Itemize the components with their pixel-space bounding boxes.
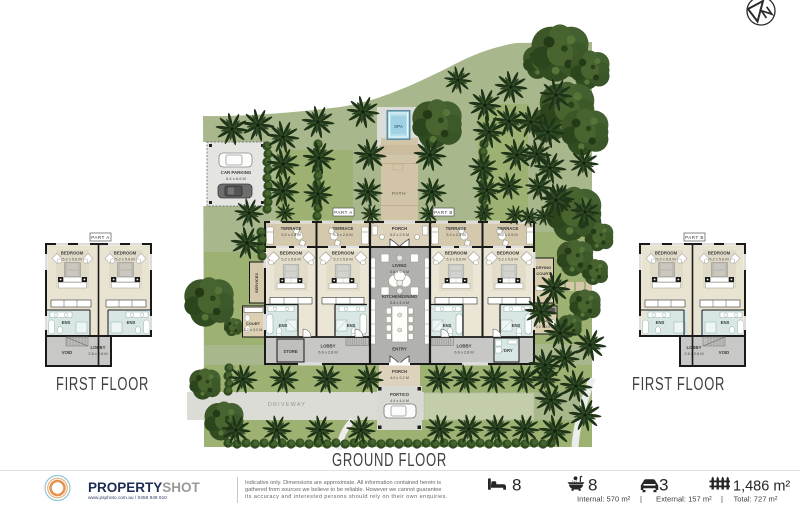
svg-text:COURT: COURT xyxy=(246,321,261,326)
svg-text:8: 8 xyxy=(512,476,521,495)
svg-text:External: 157 m²: External: 157 m² xyxy=(656,495,712,504)
svg-text:PORCH: PORCH xyxy=(392,369,407,374)
svg-text:FIRST FLOOR: FIRST FLOOR xyxy=(632,373,725,394)
svg-text:PORCH: PORCH xyxy=(392,226,408,231)
svg-text:6.6 x 2.8 M: 6.6 x 2.8 M xyxy=(454,350,473,355)
svg-text:ENS: ENS xyxy=(347,323,356,328)
svg-text:VOID: VOID xyxy=(719,350,730,355)
svg-text:5.8 x 4.4 M: 5.8 x 4.4 M xyxy=(390,300,409,305)
svg-text:PART B: PART B xyxy=(434,210,453,215)
svg-text:5.2 x 2.5 M: 5.2 x 2.5 M xyxy=(498,232,517,237)
svg-text:4.4 x 4.4 M: 4.4 x 4.4 M xyxy=(390,399,409,403)
svg-text:BEDROOM: BEDROOM xyxy=(332,251,355,256)
svg-text:TERRACE: TERRACE xyxy=(446,226,467,231)
svg-text:PATH: PATH xyxy=(392,191,406,196)
svg-text:TERRACE: TERRACE xyxy=(281,226,302,231)
svg-text:5.2 x 2.5 M: 5.2 x 2.5 M xyxy=(333,232,352,237)
svg-text:5.8 x 9.4 M: 5.8 x 9.4 M xyxy=(390,269,409,274)
svg-text:LOBBY: LOBBY xyxy=(320,344,335,349)
svg-text:gathered from sources we belie: gathered from sources we believe to be r… xyxy=(245,487,442,493)
svg-text:LOBBY: LOBBY xyxy=(686,345,701,350)
svg-text:5.2 x 5.6 M: 5.2 x 5.6 M xyxy=(656,257,675,262)
svg-text:Internal: 570 m²: Internal: 570 m² xyxy=(577,495,631,504)
svg-text:SERVICES: SERVICES xyxy=(254,273,259,293)
svg-text:PART B: PART B xyxy=(685,235,704,240)
svg-text:5.2 x 2.5 M: 5.2 x 2.5 M xyxy=(446,232,465,237)
svg-text:LIVING: LIVING xyxy=(392,263,407,268)
svg-text:5.2 x 5.6 M: 5.2 x 5.6 M xyxy=(333,257,352,262)
svg-text:BEDROOM: BEDROOM xyxy=(445,251,468,256)
svg-text:4.0 x 2.2 M: 4.0 x 2.2 M xyxy=(390,376,409,380)
svg-text:ENS: ENS xyxy=(656,320,665,325)
svg-text:|: | xyxy=(721,495,723,504)
svg-text:ENS: ENS xyxy=(62,320,71,325)
svg-text:1,486 m²: 1,486 m² xyxy=(733,479,790,495)
svg-text:5.2 x 5.6 M: 5.2 x 5.6 M xyxy=(498,257,517,262)
svg-text:2.6 x 2.8 M: 2.6 x 2.8 M xyxy=(684,351,703,356)
svg-text:BEDROOM: BEDROOM xyxy=(655,251,678,256)
svg-text:GROUND FLOOR: GROUND FLOOR xyxy=(332,449,447,470)
svg-text:8: 8 xyxy=(588,476,597,495)
svg-text:5.2 x 5.6 M: 5.2 x 5.6 M xyxy=(709,257,728,262)
svg-text:BEDROOM: BEDROOM xyxy=(708,251,731,256)
svg-text:ENS: ENS xyxy=(721,320,730,325)
svg-text:5.2 x 2.5 M: 5.2 x 2.5 M xyxy=(281,232,300,237)
svg-text:TERRACE: TERRACE xyxy=(333,226,354,231)
svg-text:TERRACE: TERRACE xyxy=(498,226,519,231)
svg-text:6.6 x 2.8 M: 6.6 x 2.8 M xyxy=(318,350,337,355)
svg-text:5.2 x 2.5 M: 5.2 x 2.5 M xyxy=(390,232,409,237)
svg-text:5.2 x 5.6 M: 5.2 x 5.6 M xyxy=(281,257,300,262)
svg-text:6.4 x 6.6 M: 6.4 x 6.6 M xyxy=(226,176,246,181)
svg-text:PART A: PART A xyxy=(91,235,110,240)
svg-text:BEDROOM: BEDROOM xyxy=(61,251,84,256)
svg-text:Indicative only. Dimensions a: Indicative only. Dimensions are approxim… xyxy=(245,480,441,486)
svg-text:ENTRY: ENTRY xyxy=(392,347,407,352)
svg-text:ENS: ENS xyxy=(443,323,452,328)
svg-text:ENS: ENS xyxy=(127,320,136,325)
svg-text:KITCHEN/DINING: KITCHEN/DINING xyxy=(382,294,418,299)
svg-text:L'DRY: L'DRY xyxy=(500,348,512,353)
svg-text:Total: 727 m²: Total: 727 m² xyxy=(734,495,778,504)
svg-text:5.2 x 5.6 M: 5.2 x 5.6 M xyxy=(446,257,465,262)
svg-text:PORTICO: PORTICO xyxy=(390,392,410,397)
svg-text:PART A: PART A xyxy=(334,210,353,215)
svg-text:www.psphoto.com.au / 0458 848: www.psphoto.com.au / 0458 848 910 xyxy=(88,495,167,501)
svg-text:5.2 x 5.6 M: 5.2 x 5.6 M xyxy=(62,257,81,262)
svg-text:2.2 x 3.2 M: 2.2 x 3.2 M xyxy=(244,328,263,332)
svg-text:5.2 x 5.6 M: 5.2 x 5.6 M xyxy=(115,257,134,262)
svg-text:COURT: COURT xyxy=(536,271,551,276)
svg-text:BEDROOM: BEDROOM xyxy=(280,251,303,256)
svg-text:LOBBY: LOBBY xyxy=(456,344,471,349)
svg-text:DRYING: DRYING xyxy=(536,265,551,270)
svg-text:CAR PARKING: CAR PARKING xyxy=(221,170,252,175)
svg-text:SPA: SPA xyxy=(394,124,403,129)
svg-text:PROPERTYSHOT: PROPERTYSHOT xyxy=(88,480,201,495)
svg-text:VOID: VOID xyxy=(62,350,73,355)
svg-text:DRIVEWAY: DRIVEWAY xyxy=(268,402,306,408)
svg-text:ENS: ENS xyxy=(512,323,521,328)
svg-text:BEDROOM: BEDROOM xyxy=(114,251,137,256)
svg-text:BEDROOM: BEDROOM xyxy=(497,251,520,256)
svg-text:|: | xyxy=(640,495,642,504)
svg-text:ENS: ENS xyxy=(279,323,288,328)
svg-text:3: 3 xyxy=(659,476,668,495)
svg-text:its accuracy and interested pe: its accuracy and interested persons shou… xyxy=(245,494,448,500)
svg-text:FIRST FLOOR: FIRST FLOOR xyxy=(56,373,149,394)
svg-text:STORE: STORE xyxy=(283,349,298,354)
